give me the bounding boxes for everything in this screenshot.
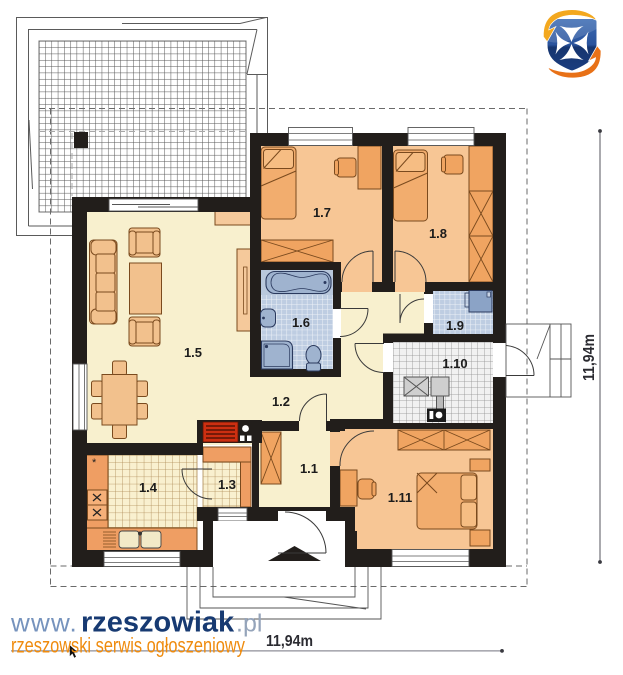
svg-text:1.7: 1.7 [313, 205, 331, 220]
svg-text:rzeszowski serwis ogłoszeniowy: rzeszowski serwis ogłoszeniowy [11, 634, 245, 657]
svg-text:*: * [92, 457, 97, 469]
svg-text:1.4: 1.4 [139, 480, 158, 495]
svg-text:1.8: 1.8 [429, 226, 447, 241]
svg-text:1.11: 1.11 [388, 490, 413, 505]
svg-text:1.2: 1.2 [272, 394, 290, 409]
svg-text:1.9: 1.9 [446, 318, 464, 333]
svg-text:1.10: 1.10 [442, 356, 467, 371]
svg-text:1.5: 1.5 [184, 345, 202, 360]
svg-text:1.1: 1.1 [300, 461, 318, 476]
svg-text:11,94m: 11,94m [580, 334, 598, 381]
svg-text:1.6: 1.6 [292, 315, 310, 330]
svg-text:1.3: 1.3 [218, 477, 236, 492]
svg-text:11,94m: 11,94m [266, 632, 313, 650]
